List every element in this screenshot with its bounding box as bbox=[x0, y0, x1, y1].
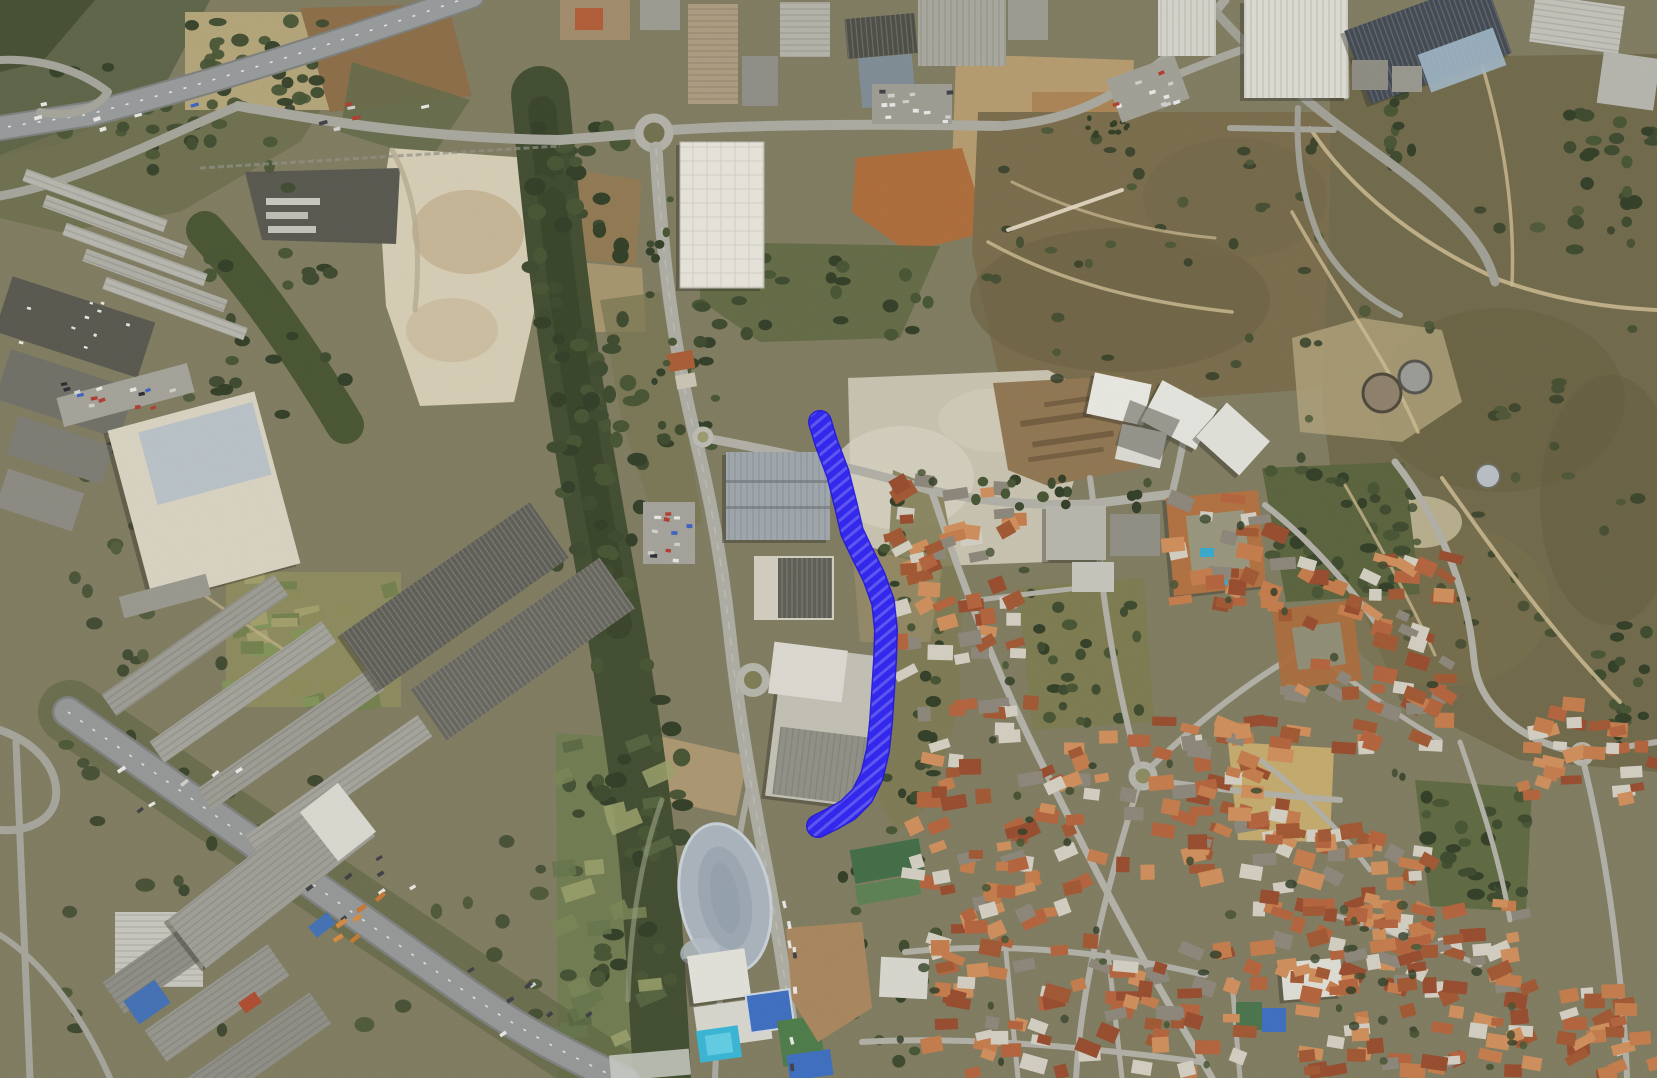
satellite-map-canvas[interactable] bbox=[0, 0, 1657, 1078]
image-grain-texture bbox=[0, 0, 1657, 1078]
aerial-imagery bbox=[0, 0, 1657, 1078]
